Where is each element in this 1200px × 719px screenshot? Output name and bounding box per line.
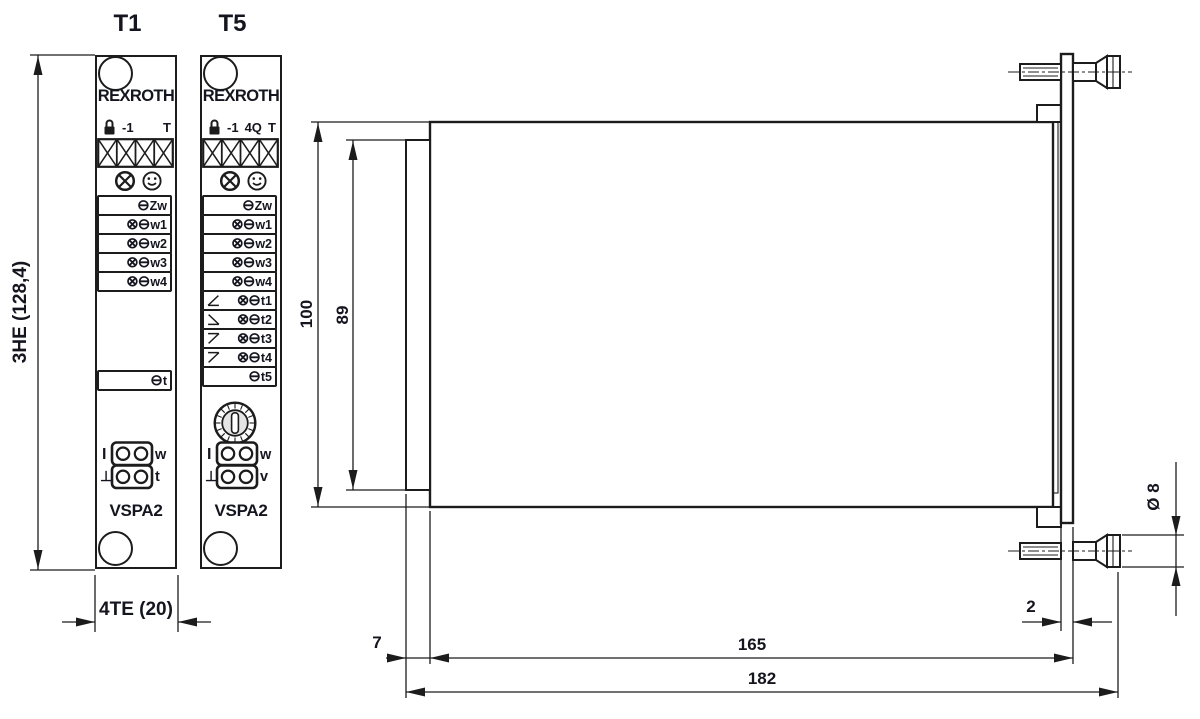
bottom-screw (1008, 535, 1132, 567)
test-point-row: ⊖ Zw (97, 195, 172, 216)
dim-label-7: 7 (372, 633, 381, 652)
test-point-row: ⊖ t (97, 370, 172, 391)
panel-title-t5: T5 (191, 10, 274, 38)
dim-total-length-182: 182 (406, 669, 1118, 697)
ramp-down-icon (207, 313, 220, 326)
edge-connector (406, 140, 430, 490)
dim-board-length-165: 165 (430, 635, 1073, 663)
dip-switch-icon (202, 138, 279, 168)
mounting-hole-icon (98, 56, 133, 91)
bottom-bracket (1037, 507, 1061, 527)
circled-cross-icon (219, 170, 241, 192)
test-point-row: ⊗⊖ t4 (202, 347, 277, 368)
test-point-label: t2 (261, 313, 272, 327)
test-point-row: ⊗⊖ w2 (202, 233, 277, 254)
lock-icon (208, 118, 221, 136)
rotary-switch-icon (212, 400, 258, 446)
socket-symbols: ⊖ (242, 198, 254, 213)
smiley-icon (246, 170, 268, 192)
socket-symbols: ⊗⊖ (231, 274, 254, 289)
dim-plate-thickness-2: 2 (1022, 597, 1112, 627)
socket-symbols: ⊖ (150, 373, 162, 388)
socket-symbols: ⊗⊖ (231, 217, 254, 232)
jack-label-v: v (260, 469, 268, 485)
test-point-label: Zw (255, 199, 272, 213)
smiley-icon (141, 170, 163, 192)
ramp-down-inverse-icon (207, 351, 220, 364)
test-point-group: ⊖ Zw ⊗⊖ w1 ⊗⊖ w2 ⊗⊖ w3 ⊗⊖ w4 (97, 195, 172, 292)
socket-symbols: ⊗⊖ (126, 236, 149, 251)
mounting-hole-icon (203, 56, 238, 91)
test-point-label: t5 (261, 370, 272, 384)
header-item: -1 (122, 120, 134, 135)
test-point-row: ⊗⊖ t3 (202, 328, 277, 349)
dim-screw-diameter: Ø 8 (1122, 462, 1184, 616)
test-point-group: ⊖ Zw ⊗⊖ w1 ⊗⊖ w2 ⊗⊖ w3 ⊗⊖ w4 (202, 195, 277, 387)
dim-label-165: 165 (738, 635, 766, 654)
jack-block-icon (110, 441, 154, 490)
test-point-row: ⊗⊖ t1 (202, 290, 277, 311)
dim-front-width: 4TE (20) (62, 575, 211, 632)
test-point-label: w1 (150, 218, 167, 232)
ramp-up-inverse-icon (207, 332, 220, 345)
test-point-row: ⊗⊖ w2 (97, 233, 172, 254)
dim-label-4te: 4TE (20) (99, 599, 173, 620)
test-point-row: ⊗⊖ w1 (97, 214, 172, 235)
side-view-and-dimensions: 3HE (128,4) 4TE (20) 100 89 (0, 0, 1200, 719)
dim-label-dia8: Ø 8 (1144, 483, 1163, 510)
socket-symbols: ⊗⊖ (126, 274, 149, 289)
test-point-label: w3 (150, 256, 167, 270)
header-item: T (268, 120, 276, 135)
pcb-board-outline (430, 122, 1053, 507)
jack-block-icon (215, 441, 259, 490)
panel-header: -1 4Q T (208, 117, 276, 137)
test-point-label: w4 (255, 275, 272, 289)
test-point-label: w2 (255, 237, 272, 251)
socket-symbols: ⊗⊖ (231, 255, 254, 270)
socket-symbols: ⊖ (248, 369, 260, 384)
brand-logo: REXROTH (202, 87, 280, 106)
panel-title-t1: T1 (86, 10, 169, 38)
jack-label-t: t (155, 469, 160, 485)
dim-label-182: 182 (748, 669, 776, 688)
header-item: T (163, 120, 171, 135)
model-label: VSPA2 (97, 501, 175, 521)
socket-symbols: ⊖ (137, 198, 149, 213)
test-point-label: t3 (261, 332, 272, 346)
socket-symbols: ⊗⊖ (237, 312, 260, 327)
header-item: -1 (227, 120, 239, 135)
socket-symbols: ⊗⊖ (231, 236, 254, 251)
lock-icon (103, 118, 116, 136)
jack-label-current: I (207, 446, 211, 464)
test-point-label: w1 (255, 218, 272, 232)
socket-symbols: ⊗⊖ (237, 293, 260, 308)
test-point-label: w2 (150, 237, 167, 251)
ramp-up-icon (207, 294, 220, 307)
test-point-label: t1 (261, 294, 272, 308)
dim-front-height: 3HE (128,4) (10, 55, 95, 570)
dim-label-3he: 3HE (128,4) (10, 261, 31, 363)
mounting-hole-icon (98, 531, 133, 566)
test-point-label: w4 (150, 275, 167, 289)
top-bracket (1037, 105, 1061, 122)
header-item: 4Q (245, 120, 262, 135)
dim-label-2: 2 (1026, 597, 1035, 616)
brand-logo: REXROTH (97, 87, 175, 106)
jack-label-ground: ⊥ (100, 468, 112, 485)
jack-label-w: w (155, 447, 166, 463)
socket-symbols: ⊗⊖ (126, 255, 149, 270)
test-point-row: ⊗⊖ w4 (97, 271, 172, 292)
front-plate (1061, 54, 1073, 523)
card-side-view (406, 54, 1132, 567)
dim-label-89: 89 (333, 306, 352, 325)
dim-extension-lines (406, 494, 1118, 698)
test-point-row: ⊗⊖ w3 (202, 252, 277, 273)
jack-label-current: I (102, 446, 106, 464)
socket-symbols: ⊗⊖ (237, 331, 260, 346)
panel-header: -1 T (103, 117, 171, 137)
test-point-row: ⊖ Zw (202, 195, 277, 216)
test-point-row: ⊗⊖ w1 (202, 214, 277, 235)
dim-label-100: 100 (297, 300, 316, 328)
dip-switch-icon (97, 138, 174, 168)
test-point-row: ⊗⊖ w4 (202, 271, 277, 292)
test-point-row: ⊗⊖ t2 (202, 309, 277, 330)
test-point-label: w3 (255, 256, 272, 270)
test-point-row: ⊗⊖ w3 (97, 252, 172, 273)
socket-symbols: ⊗⊖ (237, 350, 260, 365)
front-panel-t1: REXROTH -1 T ⊖ (95, 55, 177, 569)
technical-drawing: 3HE (128,4) 4TE (20) 100 89 (0, 0, 1200, 719)
socket-symbols: ⊗⊖ (126, 217, 149, 232)
jack-label-ground: ⊥ (205, 468, 217, 485)
jack-label-w: w (260, 447, 271, 463)
circled-cross-icon (114, 170, 136, 192)
test-point-label: Zw (150, 199, 167, 213)
model-label: VSPA2 (202, 501, 280, 521)
test-point-label: t (163, 374, 167, 388)
front-panel-t5: REXROTH -1 4Q T (200, 55, 282, 569)
test-point-single: ⊖ t (97, 370, 172, 391)
test-point-label: t4 (261, 351, 272, 365)
mounting-hole-icon (203, 531, 238, 566)
test-point-row: ⊖ t5 (202, 366, 277, 387)
